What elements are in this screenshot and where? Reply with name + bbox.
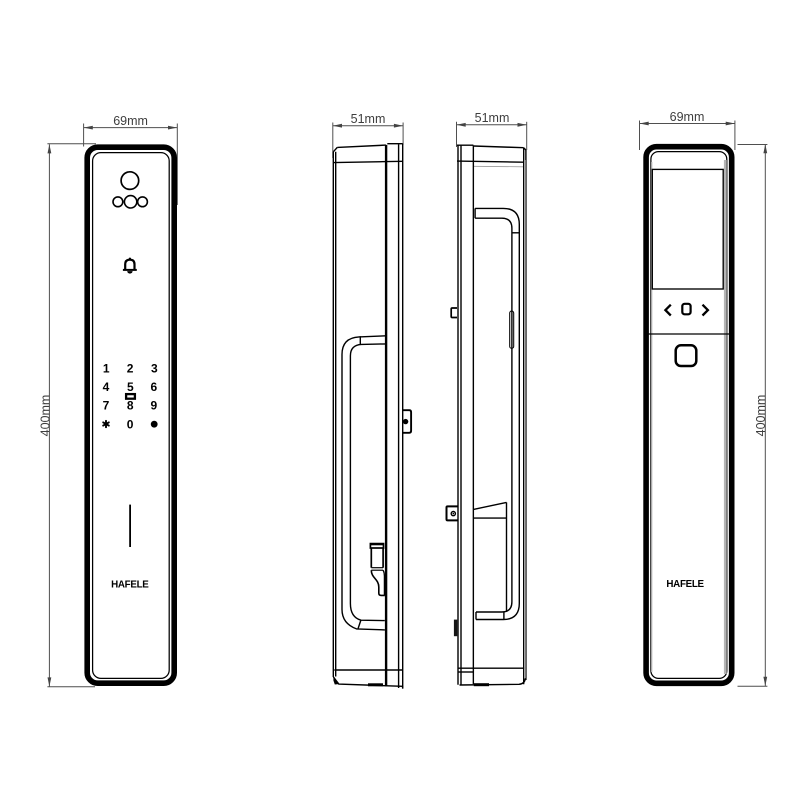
- svg-text:69mm: 69mm: [670, 110, 705, 124]
- svg-text:400mm: 400mm: [754, 395, 768, 437]
- svg-text:51mm: 51mm: [475, 111, 510, 125]
- svg-text:5: 5: [127, 380, 134, 394]
- svg-text:9: 9: [150, 399, 157, 413]
- svg-text:8: 8: [127, 399, 134, 413]
- svg-text:HAFELE: HAFELE: [666, 579, 704, 590]
- svg-text:2: 2: [127, 362, 134, 376]
- svg-text:51mm: 51mm: [351, 112, 386, 126]
- svg-text:1: 1: [103, 362, 110, 376]
- svg-text:HAFELE: HAFELE: [111, 580, 149, 591]
- svg-text:3: 3: [151, 362, 158, 376]
- svg-text:4: 4: [103, 380, 110, 394]
- svg-text:7: 7: [103, 399, 110, 413]
- svg-text:0: 0: [127, 418, 134, 432]
- svg-text:400mm: 400mm: [38, 395, 52, 437]
- svg-text:6: 6: [150, 380, 157, 394]
- svg-text:69mm: 69mm: [113, 114, 148, 128]
